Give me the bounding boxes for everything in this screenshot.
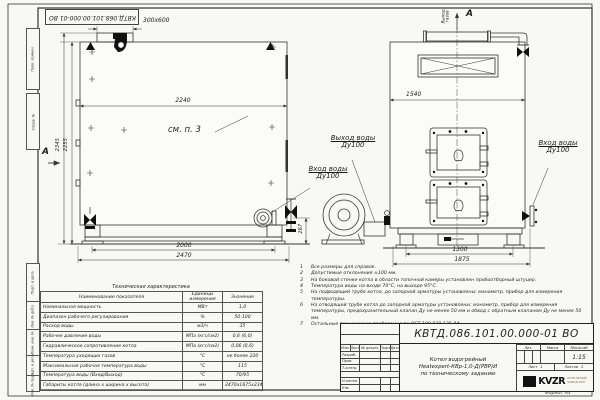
drawing-sheet: КВТД.068.101.00.000-01 ВО Перв. примен. … <box>0 0 600 400</box>
tech-row: Диапазон рабочего регулирования%50-100 <box>41 312 263 322</box>
tech-row: Рабочее давление водыМПа (кгс/см2)0,6 (6… <box>41 332 263 342</box>
dim-inlet-height: 267 <box>299 224 304 234</box>
col-header-izm: Изм. <box>341 344 350 351</box>
sheets-cell: Листов2 <box>554 363 593 370</box>
tech-row: Номинальная мощностьМВт1,0 <box>41 303 263 313</box>
dim-side-base-outer: 2470 <box>164 253 204 259</box>
frame-col-sprav-no: Справ. № <box>26 93 40 150</box>
water-inlet-label: Вход воды Ду100 <box>296 166 360 181</box>
frame-col-inv-podl: Инв. № подл. <box>26 375 40 392</box>
col-header-dokum: № докум. <box>359 344 380 351</box>
dim-front-width: 1540 <box>406 92 421 98</box>
dim-side-base-inner: 2000 <box>164 243 204 249</box>
note-item: 5На подводящей трубе котла, до запорной … <box>300 290 586 303</box>
logo-text: KVZR <box>538 376 565 387</box>
dim-front-base-outer: 1875 <box>442 257 482 263</box>
sheet-cell: Лист1 <box>516 363 554 370</box>
dim-side-width: 2240 <box>163 98 203 104</box>
doc-number: КВТД.086.101.00.000-01 ВО <box>399 324 593 344</box>
tech-row: Максимальная рабочая температура воды°С1… <box>41 361 263 371</box>
dim-front-base-inner: 1300 <box>440 247 480 253</box>
top-stamp-number: КВТД.068.101.00.000-01 ВО <box>49 14 136 21</box>
tech-table-title: Техническая характеристика <box>40 284 262 290</box>
company-logo: KVZR КОТЕЛЬНЫЙ ЗАВОД РЭП <box>516 370 593 391</box>
tech-row: Температура уходящих газов°Сне более 220 <box>41 351 263 361</box>
tech-row: Расход водым3/ч35 <box>41 322 263 332</box>
tech-table: Наименование показателя Единицы измерени… <box>40 291 263 391</box>
drawing-title: Котел водогрейный Heatexpert-КВр-1,0-Д(Р… <box>399 344 516 391</box>
dim-duct-300x600: 300x600 <box>143 18 169 24</box>
logo-block-icon <box>523 376 536 387</box>
title-block: КВТД.086.101.00.000-01 ВО Изм. Лист № до… <box>340 323 594 392</box>
view-a-label-left: А <box>42 148 49 157</box>
col-header-list: Лист <box>350 344 359 351</box>
water-outlet-label: Выход воды Ду100 <box>320 135 386 150</box>
top-stamp-box: КВТД.068.101.00.000-01 ВО <box>45 9 139 25</box>
tech-row: Температура воды (Вход/Выход)°С70/95 <box>41 371 263 381</box>
col-header-data: Дата <box>390 344 399 351</box>
water-inlet-right-label: Вход воды Ду100 <box>526 140 590 155</box>
col-header-podp: Подп. <box>380 344 390 351</box>
see-note-callout: см. п. 3 <box>168 126 201 135</box>
tech-row: Габариты котла (длина х ширина х высота)… <box>41 381 263 391</box>
logo-subtext: КОТЕЛЬНЫЙ ЗАВОД РЭП <box>567 377 587 384</box>
tech-table-header-row: Наименование показателя Единицы измерени… <box>41 292 263 303</box>
notes-list: 1Все размеры для справок. 2Допустимые от… <box>300 265 586 328</box>
scale-value: 1:15 <box>564 350 593 363</box>
view-a-label-top: А <box>466 10 473 19</box>
row-utv: Утв. <box>341 384 359 392</box>
frame-col-inv-dubl: Инв. № дубл. <box>26 301 40 331</box>
note-item: 6На отводящей трубе котла до запорной ар… <box>300 303 586 322</box>
frame-col-vzam-inv: Взам. инв. № <box>26 329 40 357</box>
dim-side-height-total: 2345 <box>56 138 61 151</box>
gas-outlet-label: Выход газов <box>442 4 451 28</box>
dim-side-height-body: 2255 <box>64 138 69 151</box>
tech-row: Гидравлическое сопротивление котлаМПа (к… <box>41 342 263 352</box>
frame-col-perv-primen: Перв. примен. <box>26 28 40 90</box>
frame-col-podp-data-1: Подп. и дата <box>26 263 40 303</box>
